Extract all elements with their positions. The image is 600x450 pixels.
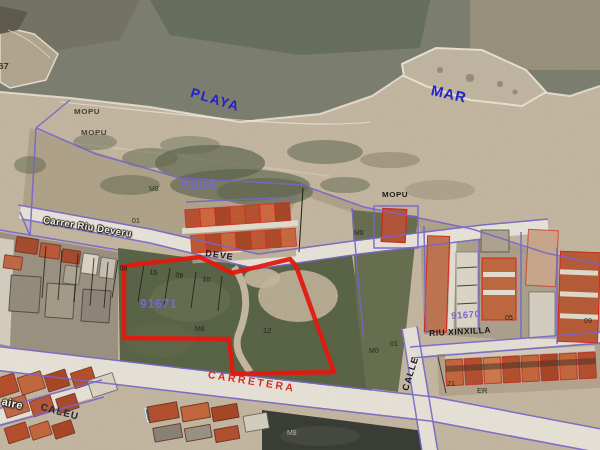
- label-num-05: 05: [505, 314, 513, 321]
- label-num-10: 10: [202, 275, 211, 283]
- label-num-08: 08: [119, 264, 128, 272]
- label-num-12: 12: [263, 327, 271, 335]
- label-parcel-91695: 91695: [181, 179, 217, 191]
- label-num-01-b: 01: [390, 340, 398, 347]
- label-m8-field: M8: [195, 325, 205, 332]
- label-mopu-1: MOPU: [74, 108, 100, 116]
- map-viewport[interactable]: 667MOPUMOPUPLAYAMAR91695M8Carrer Riu Dev…: [0, 0, 600, 450]
- label-mopu-3: MOPU: [382, 191, 408, 199]
- label-num-09: 09: [175, 271, 184, 279]
- label-parcel-91670: 91670: [451, 309, 481, 320]
- label-m8-dune: M8: [149, 185, 159, 192]
- label-rock-667: 667: [0, 61, 9, 71]
- label-m8-mopu: M8: [354, 229, 364, 236]
- label-num-er: ER: [477, 387, 487, 395]
- label-parcel-91671: 91671: [140, 298, 177, 311]
- label-num-15: 15: [149, 268, 158, 276]
- label-num-01-a: 01: [132, 217, 140, 224]
- label-num-09-b: 09: [584, 317, 592, 324]
- label-num-21: 21: [447, 380, 455, 387]
- label-mopu-2: MOPU: [81, 129, 107, 137]
- label-m8-bottom: M8: [287, 429, 297, 436]
- label-num-m0: M0: [369, 347, 379, 354]
